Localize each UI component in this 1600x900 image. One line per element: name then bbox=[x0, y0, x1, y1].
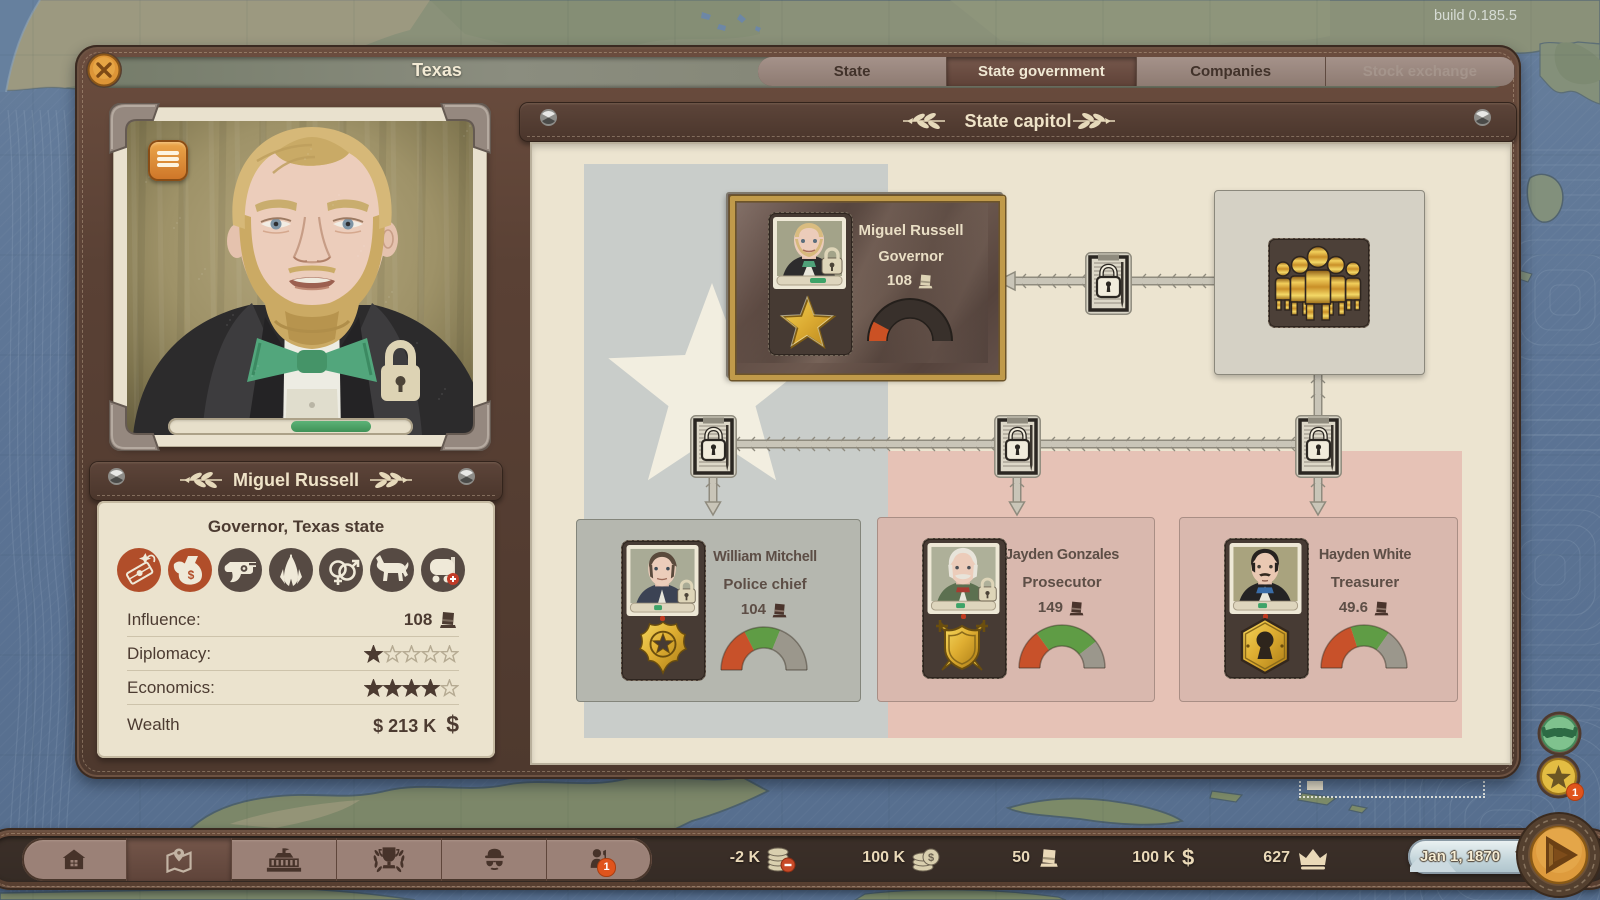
svg-text:1: 1 bbox=[1572, 787, 1578, 799]
svg-text:$: $ bbox=[928, 852, 934, 864]
svg-text:$: $ bbox=[188, 568, 195, 582]
